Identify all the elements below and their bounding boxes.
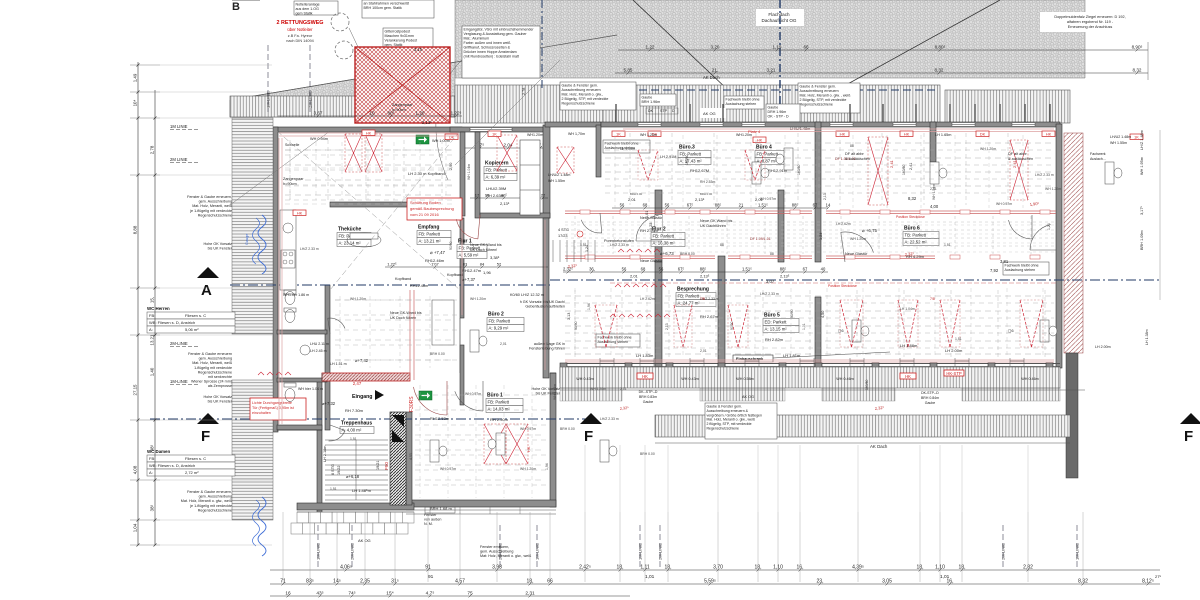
svg-text:DF 1.09/1.01: DF 1.09/1.01 [750, 237, 771, 241]
svg-text:21,: 21, [712, 68, 718, 73]
svg-text:WH 0.43m: WH 0.43m [576, 377, 593, 381]
svg-text:◻6: ◻6 [838, 328, 844, 333]
svg-text:1,01: 1,01 [645, 211, 649, 218]
svg-text:Fachwerk bleibt ohne: Fachwerk bleibt ohne [598, 336, 632, 340]
svg-text:3,38⁵: 3,38⁵ [490, 255, 500, 260]
svg-text:Zangenpaar: Zangenpaar [283, 177, 304, 181]
svg-text:1M-LINIE: 1M-LINIE [170, 379, 188, 384]
svg-text:1,51⁵: 1,51⁵ [742, 267, 752, 272]
svg-text:Büro 5: Büro 5 [764, 313, 780, 319]
svg-text:2,01: 2,01 [700, 349, 707, 353]
svg-text:BRH 0.83m: BRH 0.83m [639, 395, 657, 399]
svg-text:1,40: 1,40 [150, 367, 155, 376]
svg-text:1K: 1K [1134, 135, 1139, 139]
svg-text:WH hier 1.04 m: WH hier 1.04 m [298, 387, 323, 391]
svg-text:3,13: 3,13 [567, 313, 571, 320]
svg-text:WH 1.20m: WH 1.20m [470, 297, 486, 301]
svg-text:Schwelle: Schwelle [285, 143, 299, 147]
svg-text:AK OG: AK OG [703, 111, 716, 116]
svg-text:2,41: 2,41 [889, 159, 894, 168]
svg-text:LH 2.00m: LH 2.00m [945, 348, 963, 353]
svg-text:je 1-flügelig mit verdeckte: je 1-flügelig mit verdeckte [189, 209, 232, 213]
svg-text:Zangenpaar: Zangenpaar [392, 103, 413, 107]
svg-text:WB: Fliesen s. D, Anstrich: WB: Fliesen s. D, Anstrich [149, 320, 195, 325]
svg-text:68: 68 [641, 267, 646, 272]
svg-text:7,92: 7,92 [990, 268, 999, 273]
svg-text:88⁵: 88⁵ [700, 267, 707, 272]
svg-text:WH 1.20m: WH 1.20m [1045, 187, 1061, 191]
svg-text:2,13⁵: 2,13⁵ [500, 201, 510, 206]
svg-text:2 Bügelig, STP, mit verdeckte: 2 Bügelig, STP, mit verdeckte [562, 97, 609, 101]
svg-text:Empfang: Empfang [418, 225, 439, 231]
svg-text:4,53: 4,53 [409, 453, 413, 460]
svg-text:LHU/2.39M: LHU/2.39M [486, 186, 506, 191]
svg-text:17: 17 [475, 193, 480, 198]
svg-text:& austauschen: & austauschen [1008, 157, 1033, 161]
svg-text:8,32: 8,32 [935, 68, 944, 73]
svg-text:LH 2.91M: LH 2.91M [660, 155, 676, 159]
svg-text:B: B [232, 1, 240, 13]
svg-text:88⁵: 88⁵ [780, 267, 787, 272]
svg-text:WH1.20m: WH1.20m [527, 133, 543, 137]
svg-text:WH 1,70m: WH 1,70m [568, 132, 585, 136]
svg-text:BRH 1.96m: BRH 1.96m [642, 100, 661, 104]
svg-text:6 STG: 6 STG [331, 464, 335, 475]
svg-text:21: 21 [739, 203, 744, 208]
svg-text:1,19: 1,19 [773, 45, 782, 50]
svg-text:WH 1.55m: WH 1.55m [548, 179, 565, 183]
svg-text:alfabren ergobend Nr. 119 -: alfabren ergobend Nr. 119 - [1067, 20, 1114, 24]
svg-text:WH 1.55m: WH 1.55m [1110, 141, 1127, 145]
svg-text:HK: HK [840, 132, 846, 136]
svg-text:vom 21 09 2016: vom 21 09 2016 [410, 212, 439, 217]
svg-text:Mat. Holz, Meranti o. glw., we: Mat. Holz, Meranti o. glw., weiß [181, 499, 233, 503]
svg-text:Ausschreibung erneuern &: Ausschreibung erneuern & [707, 409, 749, 413]
svg-text:Gaube: Gaube [643, 400, 654, 404]
svg-text:N. M.: N. M. [424, 522, 433, 526]
svg-text:Kopfband: Kopfband [447, 273, 463, 277]
svg-text:bis UK Fenster: bis UK Fenster [208, 400, 233, 404]
svg-text:Hohe OK Vorsatz: Hohe OK Vorsatz [204, 242, 233, 246]
svg-text:Neue GK-Wand bis: Neue GK-Wand bis [390, 311, 422, 315]
svg-text:Position Steckdose: Position Steckdose [896, 215, 925, 219]
svg-text:HK: HK [904, 132, 910, 136]
svg-text:A: 22,52 m²: A: 22,52 m² [905, 240, 928, 245]
svg-text:LH 2.18m: LH 2.18m [323, 446, 327, 462]
svg-text:BRH 1.09m: BRH 1.09m [1140, 230, 1144, 250]
svg-text:Büro 1: Büro 1 [487, 393, 503, 399]
svg-text:2,01: 2,01 [620, 387, 627, 391]
svg-text:2 Bügelig, STP, mit verdeckte: 2 Bügelig, STP, mit verdeckte [800, 98, 847, 102]
svg-text:1M LINIE: 1M LINIE [170, 124, 188, 129]
svg-text:FB: Parkett: FB: Parkett [653, 234, 675, 239]
svg-text:1,22: 1,22 [646, 45, 655, 50]
svg-text:8,32: 8,32 [1133, 68, 1142, 73]
svg-text:BRH 0.00: BRH 0.00 [640, 452, 655, 456]
svg-text:HK-STP: HK-STP [946, 371, 962, 376]
svg-text:FB:: FB: [149, 313, 155, 318]
svg-text:Auslachung stehen: Auslachung stehen [598, 340, 629, 344]
svg-text:27,15: 27,15 [133, 384, 138, 396]
svg-text:FB: Parkett: FB: Parkett [486, 168, 508, 173]
svg-text:HK: HK [757, 138, 763, 142]
svg-text:2,13: 2,13 [665, 323, 669, 330]
svg-text:BRH 0.00: BRH 0.00 [560, 427, 575, 431]
svg-text:⌀+6,73: ⌀+6,73 [660, 251, 674, 256]
svg-text:1-flügelig mit verdeckte: 1-flügelig mit verdeckte [194, 366, 232, 370]
svg-text:2,13: 2,13 [823, 193, 827, 200]
svg-text:FB: Parkett: FB: Parkett [489, 319, 511, 324]
svg-text:Erneuerung der Anschluss: Erneuerung der Anschluss [1068, 25, 1113, 29]
svg-text:10: 10 [369, 111, 375, 116]
svg-text:HK: HK [366, 131, 372, 135]
svg-text:Drücker innen Hoppe Amsterdam: Drücker innen Hoppe Amsterdam [464, 50, 517, 54]
svg-text:RH 7.30m: RH 7.30m [345, 408, 364, 413]
svg-text:56: 56 [665, 203, 670, 208]
svg-text:UK Dach führen!: UK Dach führen! [470, 248, 497, 252]
svg-text:h=90cm: h=90cm [392, 108, 406, 112]
svg-text:F: F [1184, 428, 1193, 445]
svg-text:10⁴: 10⁴ [133, 100, 138, 107]
svg-text:56: 56 [620, 203, 625, 208]
svg-text:Büro.3: Büro.3 [679, 145, 695, 151]
svg-text:88: 88 [850, 144, 854, 148]
svg-text:LH 1.65m: LH 1.65m [935, 133, 951, 137]
svg-text:⌀+7,32: ⌀+7,32 [322, 401, 336, 406]
svg-text:WH 0.46m: WH 0.46m [836, 377, 853, 381]
svg-text:LH/Z 2.33 m: LH/Z 2.33 m [600, 417, 619, 421]
svg-text:Regenschutzschiene: Regenschutzschiene [707, 427, 740, 431]
svg-text:einzuhalten: einzuhalten [252, 411, 271, 415]
svg-text:27: 27 [541, 193, 546, 198]
svg-text:Neue Glastür: Neue Glastür [640, 216, 663, 220]
svg-text:90/90: 90/90 [790, 309, 794, 318]
svg-text:Mal. Holz, Meranti o. glw., w: Mal. Holz, Meranti o. glw., weiß [707, 418, 755, 422]
svg-text:LH 1.38m: LH 1.38m [1145, 329, 1149, 345]
svg-text:WH1.ber 1.86 m: WH1.ber 1.86 m [283, 293, 309, 297]
svg-text:AK OG: AK OG [358, 538, 371, 543]
svg-text:außere Lage GK in: außere Lage GK in [534, 342, 565, 346]
svg-text:Verankerung Podest: Verankerung Podest [385, 39, 418, 43]
svg-text:19/21: 19/21 [376, 460, 380, 470]
svg-text:2,47: 2,47 [353, 381, 362, 386]
svg-text:bis UK Fenster: bis UK Fenster [208, 247, 233, 251]
svg-text:Gaube & Fenster gem.: Gaube & Fenster gem. [562, 84, 598, 88]
svg-text:LH 2.62m: LH 2.62m [640, 297, 655, 301]
svg-text:BRH 0.84m: BRH 0.84m [921, 396, 939, 400]
svg-text:AK Dach: AK Dach [703, 75, 720, 80]
svg-text:74⁵: 74⁵ [348, 591, 355, 597]
svg-text:AK Dach: AK Dach [870, 444, 888, 449]
svg-text:5,06 m²: 5,06 m² [185, 327, 199, 332]
svg-text:A: 13,21 m²: A: 13,21 m² [419, 239, 442, 244]
svg-text:⌀+7,42: ⌀+7,42 [355, 358, 369, 363]
svg-text:A: A [201, 282, 212, 299]
svg-text:Neue GK-Wand bis: Neue GK-Wand bis [470, 243, 502, 247]
svg-text:BRH 0.00: BRH 0.00 [430, 352, 445, 356]
svg-text:1,51: 1,51 [580, 243, 587, 247]
svg-text:2,90: 2,90 [449, 163, 453, 170]
svg-text:2,01: 2,01 [630, 274, 639, 279]
svg-text:◻6: ◻6 [1008, 328, 1014, 333]
svg-text:Position Steckdose: Position Steckdose [828, 284, 857, 288]
svg-text:RH 2.50m: RH 2.50m [490, 417, 509, 422]
svg-text:WH 0.97m: WH 0.97m [760, 197, 776, 201]
svg-text:2,13⁵: 2,13⁵ [780, 274, 790, 279]
svg-text:WH 1.20m: WH 1.20m [590, 387, 606, 391]
svg-text:2,01: 2,01 [500, 342, 507, 346]
svg-text:LH/U2 1.48m: LH/U2 1.48m [1110, 135, 1131, 139]
svg-text:an Stahlrahmen verschweißt: an Stahlrahmen verschweißt [364, 2, 410, 6]
svg-text:19/22: 19/22 [337, 465, 341, 475]
svg-text:1,04: 1,04 [133, 523, 138, 532]
svg-text:BRH 0.00: BRH 0.00 [680, 252, 695, 256]
svg-text:Austachung stehen: Austachung stehen [726, 102, 757, 106]
svg-text:56: 56 [659, 267, 664, 272]
svg-text:WH 1.20m: WH 1.20m [980, 147, 996, 151]
svg-text:BRH 0.00: BRH 0.00 [700, 192, 713, 196]
svg-text:8,90⁵: 8,90⁵ [1132, 45, 1143, 50]
svg-text:3,15: 3,15 [414, 47, 423, 52]
svg-text:Gitterrostpodest: Gitterrostpodest [385, 30, 411, 34]
svg-text:91: 91 [428, 574, 434, 580]
svg-text:Fenster erneuern,: Fenster erneuern, [480, 545, 509, 549]
svg-text:Einbauschrank: Einbauschrank [736, 357, 764, 361]
svg-text:ED: Parkett: ED: Parkett [765, 320, 788, 325]
svg-text:WH 1.95m: WH 1.95m [1140, 157, 1144, 175]
svg-text:HK: HK [642, 374, 648, 379]
svg-text:RH12.46m: RH12.46m [410, 284, 428, 288]
svg-text:Regenschutzschiene: Regenschutzschiene [198, 508, 232, 512]
svg-text:LH 1.51 m: LH 1.51 m [330, 362, 347, 366]
svg-text:TB: Parkett: TB: Parkett [905, 233, 927, 238]
svg-text:67: 67 [813, 203, 818, 208]
svg-text:90/90: 90/90 [449, 241, 453, 250]
svg-text:DK-STP--D: DK-STP--D [921, 391, 939, 395]
svg-text:Fachwerk bleibt ohne: Fachwerk bleibt ohne [1005, 264, 1039, 268]
svg-text:Theküche: Theküche [338, 227, 362, 233]
svg-text:DRH 1.96m: DRH 1.96m [768, 110, 787, 114]
svg-text:1,96: 1,96 [483, 270, 492, 275]
svg-text:WH 1.04m: WH 1.04m [467, 164, 471, 180]
svg-text:gem Statik: gem Statik [296, 12, 313, 16]
svg-text:2,78: 2,78 [150, 145, 155, 154]
svg-text:Neue GK Wand bis: Neue GK Wand bis [700, 219, 732, 223]
svg-text:A:: A: [149, 470, 153, 475]
svg-text:2 RETTUNGSWEG: 2 RETTUNGSWEG [276, 20, 323, 26]
svg-text:2,41: 2,41 [909, 163, 913, 170]
svg-text:Tür (Fertigmaß) 0,95m ist: Tür (Fertigmaß) 0,95m ist [252, 406, 294, 410]
svg-text:2,13⁵: 2,13⁵ [422, 120, 432, 125]
svg-text:WC Herren: WC Herren [147, 306, 170, 311]
svg-text:WH 1.20m: WH 1.20m [640, 133, 657, 137]
svg-text:4,50: 4,50 [821, 311, 825, 318]
svg-text:LH/Z 2.33 m: LH/Z 2.33 m [610, 243, 629, 247]
svg-text:2M-LINIE: 2M-LINIE [170, 341, 188, 346]
svg-text:2 flügelig, STP, mit verdeckte: 2 flügelig, STP, mit verdeckte [707, 422, 752, 426]
svg-text:67⁵: 67⁵ [687, 203, 694, 208]
svg-text:RH12.47m: RH12.47m [462, 268, 482, 273]
svg-text:Fliesen s. C: Fliesen s. C [185, 313, 206, 318]
svg-text:8,80⁵: 8,80⁵ [935, 45, 946, 50]
svg-text:Flachdach: Flachdach [768, 12, 790, 17]
svg-text:RH12.67M: RH12.67M [690, 168, 709, 173]
svg-text:Besprechung: Besprechung [677, 287, 709, 293]
svg-text:1'07: 1'07 [431, 262, 439, 267]
svg-text:Kopfband: Kopfband [395, 277, 411, 281]
svg-text:Ausschreibung erneuern: Ausschreibung erneuern [800, 89, 839, 93]
svg-text:Eingang: Eingang [352, 394, 372, 400]
svg-text:Fenster & Gaube erneuern: Fenster & Gaube erneuern [188, 352, 232, 356]
svg-text:3,07: 3,07 [766, 279, 775, 284]
svg-text:8,12⁵: 8,12⁵ [1142, 579, 1154, 585]
svg-text:Wiener Sprosse (24 mm): Wiener Sprosse (24 mm) [191, 380, 232, 384]
svg-text:3,17⁵: 3,17⁵ [1140, 206, 1144, 215]
svg-text:43⁵: 43⁵ [316, 591, 323, 597]
svg-text:aus dem 1.OG: aus dem 1.OG [296, 7, 320, 11]
svg-text:Notleiteranlage: Notleiteranlage [296, 3, 320, 7]
svg-text:WB: Fliesen s. D, Anstrich: WB: Fliesen s. D, Anstrich [149, 463, 195, 468]
svg-text:17/23: 17/23 [558, 234, 568, 238]
svg-text:LH 1.04m: LH 1.04m [900, 307, 915, 311]
svg-text:1,20: 1,20 [416, 111, 425, 116]
svg-text:UK Dach führen: UK Dach führen [390, 316, 416, 320]
svg-text:160/80: 160/80 [797, 165, 801, 175]
svg-text:FB: Parkett: FB: Parkett [419, 232, 441, 237]
svg-text:Gaube: Gaube [642, 96, 653, 100]
svg-text:Fachwerk: Fachwerk [1090, 152, 1106, 156]
svg-text:Mat. Holz, Meranti, weiß: Mat. Holz, Meranti, weiß [192, 361, 232, 365]
svg-text:Büro 2: Büro 2 [488, 312, 504, 318]
svg-text:Mat: Holz, Meranti o. glw., we: Mat: Holz, Meranti o. glw., weiß [480, 554, 532, 558]
svg-text:160/80: 160/80 [902, 165, 906, 175]
svg-text:LH/Z 1.48m: LH/Z 1.48m [1140, 130, 1144, 150]
svg-text:von außen: von außen [424, 518, 441, 522]
svg-text:Mat.: Aluminium: Mat.: Aluminium [464, 37, 490, 41]
svg-text:3,21: 3,21 [767, 68, 776, 73]
svg-text:67: 67 [803, 267, 808, 272]
svg-text:RH 2.53m: RH 2.53m [700, 180, 715, 184]
svg-text:2,13⁵: 2,13⁵ [695, 197, 705, 202]
svg-text:56: 56 [622, 267, 627, 272]
svg-text:15,: 15, [150, 297, 155, 303]
svg-text:Auslachung stehen: Auslachung stehen [1005, 268, 1036, 272]
svg-text:2,78: 2,78 [522, 88, 526, 95]
svg-text:WH 1.04m: WH 1.04m [553, 384, 557, 400]
svg-text:LH 2.00m: LH 2.00m [1095, 345, 1111, 349]
svg-text:UK Dachführen: UK Dachführen [700, 224, 726, 228]
svg-text:2,01: 2,01 [628, 197, 637, 202]
svg-text:A: 9,29 m²: A: 9,29 m² [489, 326, 509, 331]
svg-text:als Zemprosse: als Zemprosse [208, 384, 232, 388]
svg-text:HK: HK [297, 211, 303, 215]
svg-text:13,21: 13,21 [150, 334, 155, 346]
svg-text:WH 0.97m: WH 0.97m [465, 392, 481, 396]
svg-text:BRH 100cm gem. Statik: BRH 100cm gem. Statik [364, 6, 403, 10]
svg-text:84: 84 [480, 262, 485, 267]
svg-text:16,: 16, [947, 579, 954, 585]
svg-text:A: 6,39 m²: A: 6,39 m² [486, 175, 506, 180]
svg-text:gem. Ausschreibung: gem. Ausschreibung [480, 550, 513, 554]
svg-text:DK: DK [648, 109, 654, 113]
svg-text:1,23: 1,23 [1047, 223, 1051, 230]
svg-text:Dachaufsicht OG: Dachaufsicht OG [762, 18, 797, 23]
svg-text:Lichte Durchgangsbreite: Lichte Durchgangsbreite [252, 401, 292, 405]
svg-text:& austauschen: & austauschen [845, 157, 870, 161]
svg-text:98⁵: 98⁵ [150, 444, 155, 451]
svg-text:2,72 m²: 2,72 m² [185, 470, 199, 475]
svg-text:1,49: 1,49 [133, 73, 138, 82]
svg-text:FB: Parkett: FB: Parkett [488, 400, 510, 405]
svg-text:1,51⁵: 1,51⁵ [758, 203, 768, 208]
svg-text:4,00: 4,00 [930, 204, 939, 209]
svg-text:F90: F90 [384, 462, 389, 470]
svg-text:Gaube & Fenster gem.: Gaube & Fenster gem. [800, 85, 836, 89]
svg-text:4,06⁵: 4,06⁵ [340, 565, 352, 571]
svg-text:WH 1.20m: WH 1.20m [850, 237, 866, 241]
svg-text:RH 2.63m: RH 2.63m [486, 193, 505, 198]
svg-text:K0/60 LH/Z 12.32 m: K0/60 LH/Z 12.32 m [510, 293, 544, 297]
svg-text:Ausschreibung erneuern: Ausschreibung erneuern [562, 88, 601, 92]
svg-text:Fachwerk bleibt ohne: Fachwerk bleibt ohne [726, 98, 760, 102]
svg-text:Büro 6: Büro 6 [904, 226, 920, 232]
svg-text:4,08: 4,08 [133, 465, 138, 474]
svg-text:1,51: 1,51 [350, 437, 357, 441]
svg-text:90/90: 90/90 [574, 321, 578, 330]
svg-text:1K: 1K [616, 132, 621, 136]
svg-text:Treppenhaus: Treppenhaus [341, 421, 372, 427]
svg-text:88⁵: 88⁵ [715, 203, 722, 208]
svg-text:F30RS: F30RS [409, 396, 415, 412]
svg-text:14: 14 [826, 203, 831, 208]
svg-text:LHU 2.11 m: LHU 2.11 m [310, 342, 329, 346]
svg-text:1,94: 1,94 [545, 463, 549, 470]
svg-text:LH 2.45 m: LH 2.45 m [310, 349, 327, 353]
svg-text:1,51: 1,51 [955, 337, 962, 341]
svg-text:⌀+6,18: ⌀+6,18 [346, 474, 360, 479]
svg-text:Fenster & Gaube erneuern,: Fenster & Gaube erneuern, [187, 195, 232, 199]
svg-text:mit senkrechte: mit senkrechte [208, 375, 232, 379]
svg-text:Fenster: Fenster [424, 513, 437, 517]
svg-text:36,: 36, [589, 267, 595, 272]
svg-text:Griffkanuf, Schlossrosetten &: Griffkanuf, Schlossrosetten & [464, 46, 511, 50]
svg-text:A: 23,14 m²: A: 23,14 m² [339, 241, 362, 246]
svg-text:je 1-flügelig mit verdeckte: je 1-flügelig mit verdeckte [189, 504, 232, 508]
svg-text:STP: STP [660, 109, 668, 113]
svg-text:LH 1.04m: LH 1.04m [620, 147, 635, 151]
svg-text:Fenster & Gaube erneuern,: Fenster & Gaube erneuern, [187, 490, 232, 494]
svg-text:WH 0.97m: WH 0.97m [996, 202, 1012, 206]
svg-text:gemäß Baubesprechung: gemäß Baubesprechung [410, 206, 454, 211]
svg-text:3,81: 3,81 [1000, 259, 1009, 264]
svg-text:Fachwerk bleibt ohne: Fachwerk bleibt ohne [605, 142, 639, 146]
svg-text:1K: 1K [492, 132, 497, 136]
svg-text:WH 1.20m: WH 1.20m [520, 467, 536, 471]
svg-text:Regenschutzschiene: Regenschutzschiene [800, 103, 833, 107]
svg-text:WH 0.43m: WH 0.43m [681, 377, 698, 381]
svg-text:38⁵: 38⁵ [150, 504, 155, 511]
svg-text:23,: 23, [817, 579, 824, 585]
svg-text:WH 1.20m: WH 1.20m [350, 297, 366, 301]
svg-text:5,59⁵: 5,59⁵ [704, 579, 716, 585]
svg-text:h GK Vorsatz: bis UK Dach/: h GK Vorsatz: bis UK Dach/ [520, 300, 566, 304]
svg-text:7/8: 7/8 [700, 297, 705, 301]
svg-text:40: 40 [821, 267, 826, 272]
svg-text:DF alt abbr: DF alt abbr [845, 152, 865, 156]
svg-text:LH/Z 2.33 m: LH/Z 2.33 m [300, 247, 319, 251]
svg-text:90/90: 90/90 [730, 321, 734, 330]
svg-text:8,32: 8,32 [908, 196, 917, 201]
